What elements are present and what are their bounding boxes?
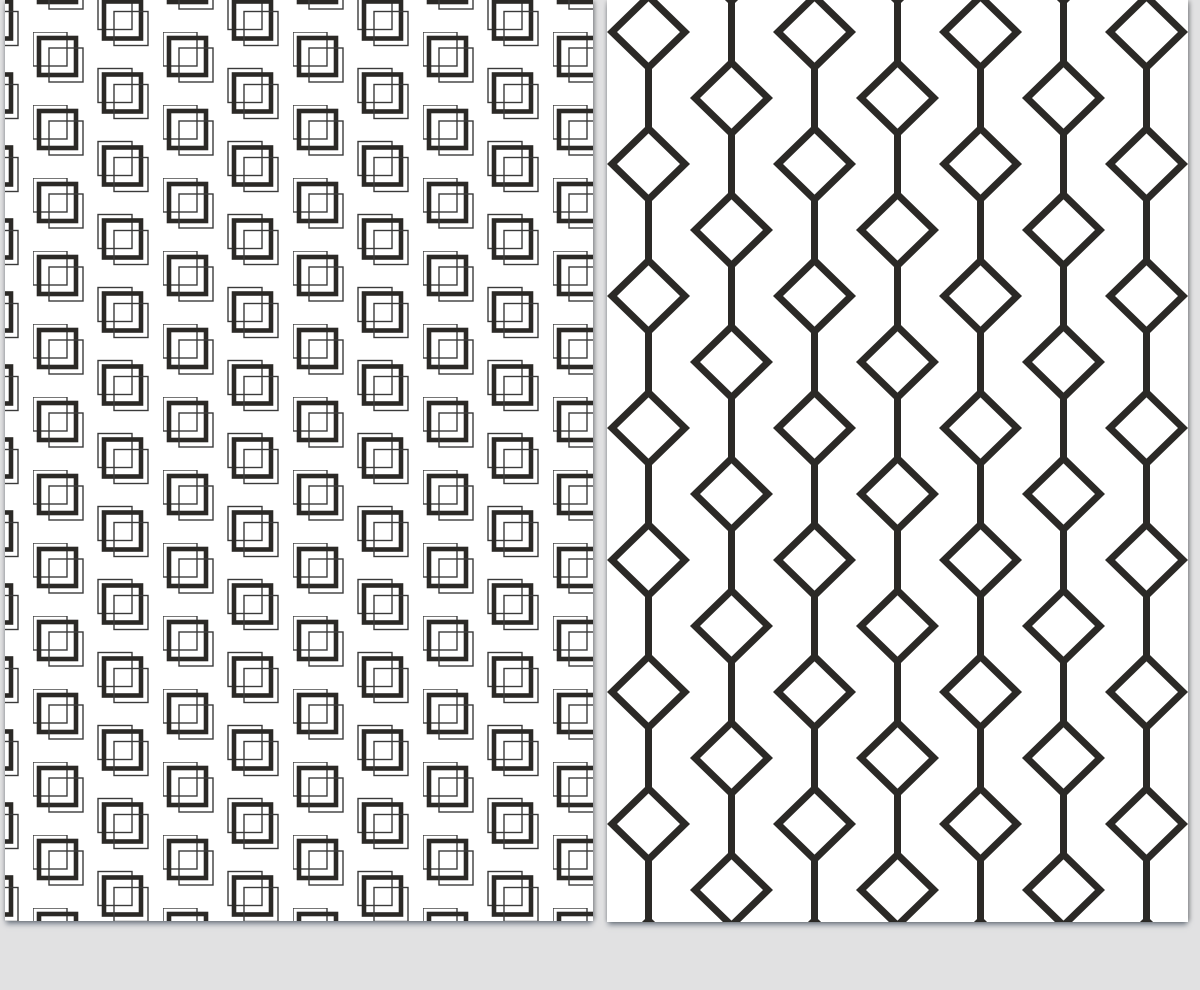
overlapping-squares-pattern-sheet xyxy=(5,0,593,921)
pattern-preview-backdrop xyxy=(0,0,1200,990)
diamond-chain-pattern-sheet xyxy=(607,0,1188,922)
overlapping-squares-pattern xyxy=(5,0,593,921)
diamond-chain-pattern xyxy=(607,0,1188,922)
